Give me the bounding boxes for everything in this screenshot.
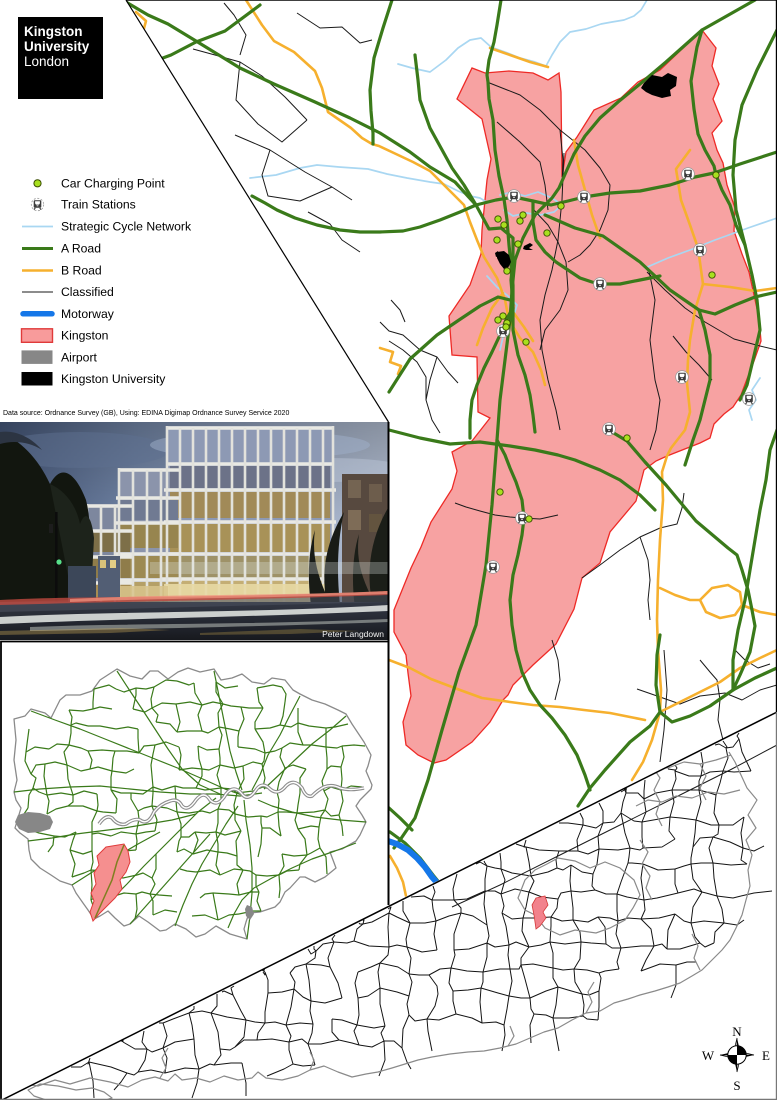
svg-text:N: N [732, 1024, 742, 1039]
svg-text:Kingston University: Kingston University [61, 372, 166, 386]
svg-text:Peter Langdown: Peter Langdown [322, 629, 384, 639]
svg-text:Airport: Airport [61, 350, 98, 364]
svg-text:B Road: B Road [61, 264, 102, 278]
svg-text:A Road: A Road [61, 242, 101, 256]
svg-text:Kingston: Kingston [61, 329, 108, 343]
svg-text:Car Charging Point: Car Charging Point [61, 177, 165, 191]
svg-text:Train Stations: Train Stations [61, 198, 136, 212]
svg-text:Motorway: Motorway [61, 307, 115, 321]
svg-text:University: University [24, 39, 90, 54]
svg-text:Strategic Cycle Network: Strategic Cycle Network [61, 220, 192, 234]
svg-text:Kingston: Kingston [24, 24, 83, 39]
svg-text:Classified: Classified [61, 285, 114, 299]
svg-text:S: S [733, 1078, 740, 1093]
svg-text:London: London [24, 54, 69, 69]
svg-text:W: W [702, 1048, 715, 1063]
svg-text:Data source: Ordnance Survey (: Data source: Ordnance Survey (GB), Using… [3, 410, 289, 417]
svg-text:E: E [762, 1048, 770, 1063]
